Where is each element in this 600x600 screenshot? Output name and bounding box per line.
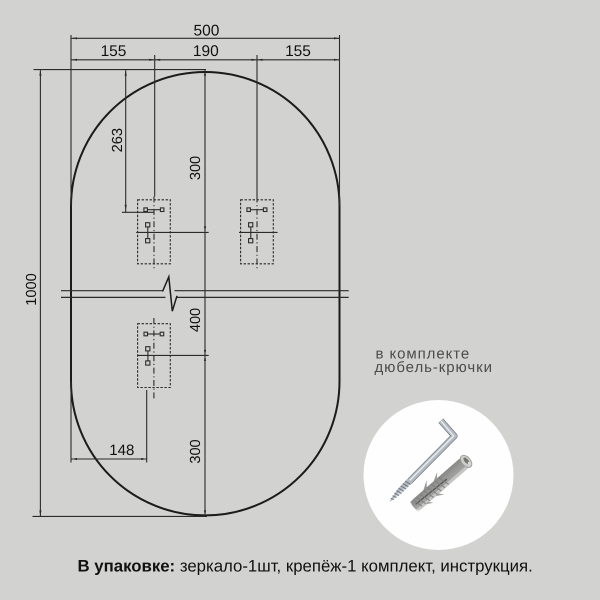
- svg-text:263: 263: [110, 128, 126, 152]
- svg-text:1000: 1000: [24, 273, 40, 305]
- svg-text:155: 155: [285, 43, 311, 60]
- svg-text:148: 148: [109, 442, 134, 459]
- svg-text:500: 500: [193, 23, 219, 40]
- svg-text:дюбель-крючки: дюбель-крючки: [375, 359, 493, 376]
- svg-text:400: 400: [188, 308, 204, 332]
- svg-text:300: 300: [188, 156, 204, 180]
- svg-text:155: 155: [101, 43, 127, 60]
- svg-text:190: 190: [193, 43, 219, 60]
- svg-text:300: 300: [188, 439, 204, 463]
- svg-text:В упаковке: зеркало-1шт, крепё: В упаковке: зеркало-1шт, крепёж-1 компле…: [78, 557, 533, 576]
